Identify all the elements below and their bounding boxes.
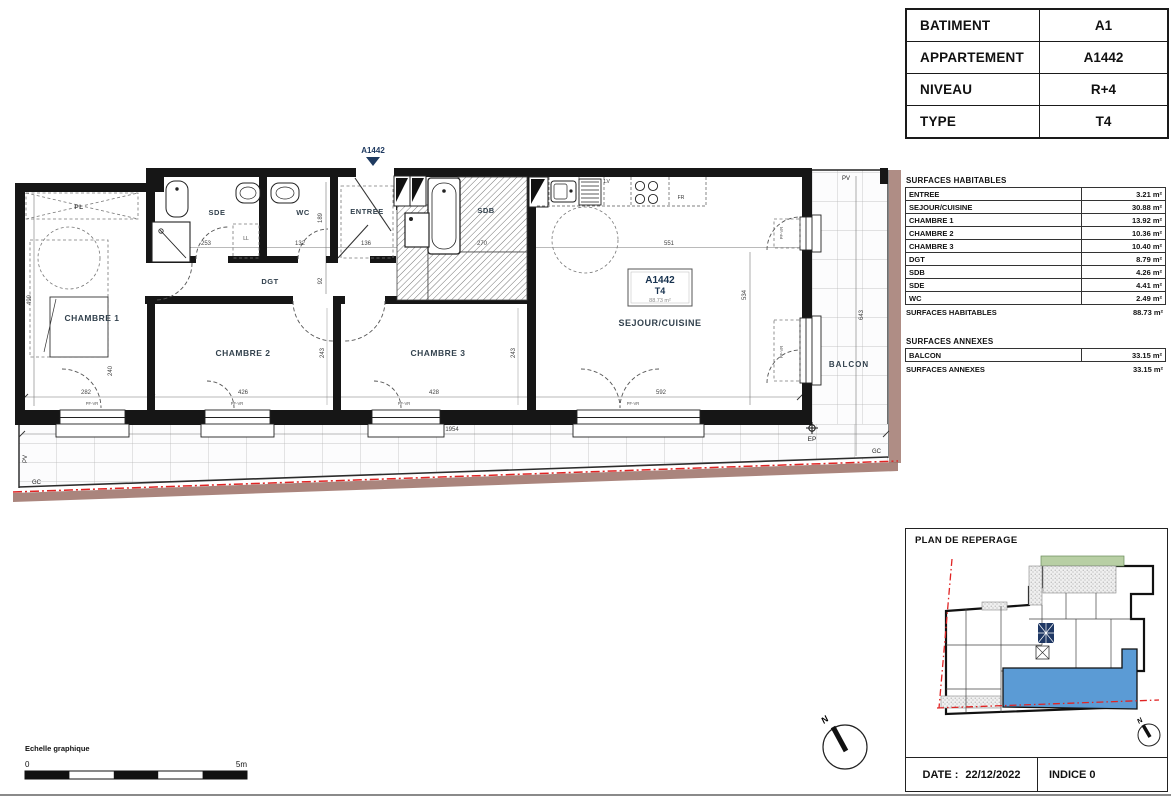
toilet-icon [271,183,299,203]
unit-info-table: BATIMENT A1 APPARTEMENT A1442 NIVEAU R+4… [905,8,1169,139]
gc-label: GC [872,449,882,455]
info-label: NIVEAU [907,74,1039,105]
dim-label: 270 [477,241,488,247]
bed [44,297,108,357]
info-label: BATIMENT [907,10,1039,41]
pv-label: PV [842,176,850,182]
surface-label: DGT [906,253,1081,265]
dim-label: 136 [361,241,372,247]
balcony-bottom [13,424,898,502]
info-value: A1442 [1039,42,1167,73]
table-row: BATIMENT A1 [907,10,1167,42]
surfaces-habitables-total: SURFACES HABITABLES 88.73 m² [905,305,1166,320]
shower-icon [152,222,190,262]
ll-label: LL [243,236,249,242]
surface-value: 4.26 m² [1081,266,1165,278]
table-row: DGT8.79 m² [906,253,1165,266]
property-band-right [889,170,901,463]
pfvr-label: PF-VR [231,401,244,406]
table-row: CHAMBRE 210.36 m² [906,227,1165,240]
surface-value: 2.49 m² [1081,292,1165,304]
surface-value: 30.88 m² [1081,201,1165,213]
table-row: NIVEAU R+4 [907,74,1167,106]
dim-label: 282 [81,390,92,396]
gravel-zone [1043,566,1116,593]
room-label-chambre1: CHAMBRE 1 [64,313,119,323]
table-row: SDB4.26 m² [906,266,1165,279]
planted-strip [1041,556,1124,566]
table-row: SEJOUR/CUISINE30.88 m² [906,201,1165,214]
dim-label: 92 [318,277,324,284]
gravel-zone [982,602,1007,610]
scale-bar: Echelle graphique 0 5m [25,744,247,779]
dim-label: 132 [295,241,306,247]
surface-label: SEJOUR/CUISINE [906,201,1081,213]
table-row: BALCON33.15 m² [906,349,1165,362]
marker-triangle-icon [366,157,380,166]
pfvr-label: PF-VR [779,346,784,359]
titleblock-row: DATE : 22/12/2022 INDICE 0 [906,757,1167,791]
room-label-sdb: SDB [477,206,494,215]
info-label: APPARTEMENT [907,42,1039,73]
table-row: TYPE T4 [907,106,1167,137]
surface-label: CHAMBRE 1 [906,214,1081,226]
room-label-balcon: BALCON [829,360,869,369]
pfvr-label: PF-VR [627,401,640,406]
mini-north-compass: N [1136,716,1160,746]
cooktop-icon [635,181,657,203]
dim-label: 592 [656,390,667,396]
north-compass: N [819,713,867,769]
north-label: N [819,713,831,725]
dim-label: 534 [742,289,748,300]
surface-value: 3.21 m² [1081,188,1165,200]
total-label: SURFACES ANNEXES [905,365,1133,374]
indice-cell: INDICE 0 [1038,758,1167,791]
page-bottom-border [0,794,1171,796]
dim-label: 189 [318,212,324,223]
surfaces-annexes-title: SURFACES ANNEXES [906,337,1166,346]
surface-value: 13.92 m² [1081,214,1165,226]
surface-label: SDE [906,279,1081,291]
cupboard-icon [394,176,426,206]
toilet-icon [236,183,260,203]
surface-value: 10.40 m² [1081,240,1165,252]
unit-box-type: T4 [655,286,666,296]
scale-title: Echelle graphique [25,744,90,753]
total-value: 88.73 m² [1133,308,1166,317]
lv-label: LV [604,179,610,185]
room-label-chambre3: CHAMBRE 3 [410,348,465,358]
water-heater-icon [405,213,429,247]
surface-value: 8.79 m² [1081,253,1165,265]
room-label-entree: ENTREE [350,207,383,216]
cabinet-icon [529,177,548,207]
water-heater-dot [410,218,413,221]
surfaces-habitables-table: ENTREE3.21 m² SEJOUR/CUISINE30.88 m² CHA… [905,187,1166,305]
room-label-pl: PL [74,204,83,211]
table-circle [552,207,618,273]
north-label: N [1136,716,1145,725]
furniture-circle [38,227,100,289]
surface-label: WC [906,292,1081,304]
surfaces-annexes-total: SURFACES ANNEXES 33.15 m² [905,362,1166,377]
floor-plan: CHAMBRE 1 CHAMBRE 2 CHAMBRE 3 SEJOUR/CUI… [0,0,905,800]
shutter-box [774,219,800,248]
info-label: TYPE [907,106,1039,137]
date-value: 22/12/2022 [965,769,1020,781]
room-label-chambre2: CHAMBRE 2 [215,348,270,358]
surface-value: 33.15 m² [1081,349,1165,361]
unit-box-id: A1442 [645,275,675,286]
dim-label: 428 [429,390,440,396]
surfaces-panel: SURFACES HABITABLES ENTREE3.21 m² SEJOUR… [905,176,1166,377]
room-label-sde: SDE [209,208,226,217]
room-label-sejour: SEJOUR/CUISINE [618,318,701,328]
pv-label: PV [23,455,29,463]
location-plan-panel: PLAN DE REPERAGE [905,528,1168,792]
pfvr-label: PF-VR [398,401,411,406]
table-row: CHAMBRE 113.92 m² [906,214,1165,227]
dim-label: 243 [511,347,517,358]
balcony-right [812,168,901,463]
pfvr-label: PF-VR [779,227,784,240]
ep-label: EP [808,436,817,443]
surface-label: CHAMBRE 2 [906,227,1081,239]
info-value: R+4 [1039,74,1167,105]
table-row: ENTREE3.21 m² [906,188,1165,201]
table-row: CHAMBRE 310.40 m² [906,240,1165,253]
dim-label: 643 [859,309,865,320]
apartment-marker-label: A1442 [361,146,385,155]
total-value: 33.15 m² [1133,365,1166,374]
surface-label: BALCON [906,349,1081,361]
dim-label: 240 [108,365,114,376]
surfaces-habitables-title: SURFACES HABITABLES [906,176,1166,185]
room-label-wc: WC [296,208,310,217]
date-cell: DATE : 22/12/2022 [906,758,1038,791]
gc-label: GC [32,480,42,486]
table-row: APPARTEMENT A1442 [907,42,1167,74]
table-row: SDE4.41 m² [906,279,1165,292]
location-plan-title: PLAN DE REPERAGE [915,535,1017,546]
surface-label: ENTREE [906,188,1081,200]
kitchen-icons [537,177,706,206]
dim-label: 253 [201,241,212,247]
date-label: DATE : [923,769,959,781]
gravel-zone [1029,566,1042,605]
fixtures [152,176,706,262]
unit-box: A1442 T4 88.73 m² [628,269,692,306]
dim-label: 551 [664,241,675,247]
scale-start: 0 [25,760,30,769]
surfaces-annexes-table: BALCON33.15 m² [905,348,1166,362]
unit-box-area: 88.73 m² [649,298,671,304]
dim-label: 1954 [445,427,459,433]
surface-label: SDB [906,266,1081,278]
surface-label: CHAMBRE 3 [906,240,1081,252]
apartment-marker: A1442 [361,146,385,166]
total-label: SURFACES HABITABLES [905,308,1133,317]
washbasin-icon [166,181,188,217]
surface-value: 10.36 m² [1081,227,1165,239]
scale-end: 5m [236,760,247,769]
info-value: T4 [1039,106,1167,137]
oven-icon [579,179,601,205]
dim-label: 499 [27,294,33,305]
dim-label: 426 [238,390,249,396]
bathtub-icon [428,178,460,254]
surface-value: 4.41 m² [1081,279,1165,291]
pfvr-label: PF-VR [86,401,99,406]
fr-label: FR [678,195,685,201]
dim-label: 243 [320,347,326,358]
table-row: WC2.49 m² [906,292,1165,305]
location-plan-map: N [906,549,1166,757]
info-value: A1 [1039,10,1167,41]
room-label-dgt: DGT [261,277,278,286]
